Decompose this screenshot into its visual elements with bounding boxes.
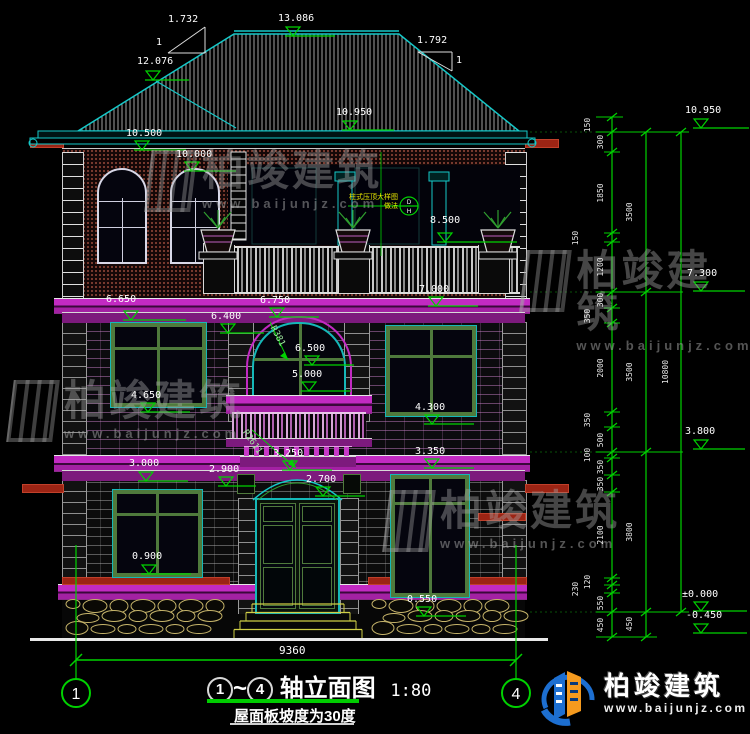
level-label: 10.000: [176, 150, 212, 160]
dim-chain-value: 120: [584, 565, 592, 599]
arched-window-left-1: [97, 168, 147, 264]
window-mullion: [99, 227, 145, 228]
window-pane: [395, 505, 429, 593]
datum-level-label: ±0.000: [682, 590, 718, 600]
arch-spring-block-left: [237, 474, 255, 494]
window-pane: [432, 479, 466, 502]
level-label: 2.900: [209, 465, 239, 475]
window-mullion: [172, 227, 218, 228]
window-mullion: [122, 198, 123, 262]
axis-bubble-1: 1: [72, 686, 81, 703]
dim-chain-value: 450: [626, 607, 634, 641]
red-band-left-belt: [22, 484, 64, 493]
level-label: 10.950: [336, 108, 372, 118]
drawing-scale: 1:80: [390, 681, 431, 701]
level-label: 3.350: [415, 447, 445, 457]
level-label: 3.000: [129, 459, 159, 469]
level-label: 6.750: [260, 296, 290, 306]
door-leaf-left: [260, 503, 296, 609]
dim-chain-value: 300: [597, 283, 605, 317]
door-panel: [263, 506, 293, 522]
dim-chain-value: 1850: [597, 176, 605, 210]
red-beam-right-eave: [525, 139, 559, 148]
door-panel: [302, 567, 332, 606]
dim-chain-value: 150: [572, 221, 580, 255]
dim-chain-value: 3800: [626, 515, 634, 549]
door-panel: [263, 567, 293, 606]
window-mullion: [195, 198, 196, 262]
dim-chain-value: 3500: [626, 355, 634, 389]
level-label: 3.250: [273, 449, 303, 459]
red-beam-left-eave: [30, 139, 64, 148]
door-panel: [302, 506, 332, 522]
title-block: 1~4 轴立面图 1:80: [207, 668, 431, 703]
subtitle-underline: [230, 723, 354, 725]
window-pane: [433, 330, 473, 355]
dim-chain-value: 2100: [597, 518, 605, 552]
dim-chain-value: 230: [572, 572, 580, 606]
datum-level-label: 7.300: [687, 269, 717, 279]
brand-logo: 柏竣建筑 www.baijunjz.com: [536, 662, 748, 726]
slope-left-run: 1.732: [168, 15, 198, 25]
detail-note: 柱式压顶大样图 做法: [340, 193, 398, 211]
door-panel: [263, 525, 293, 564]
window-pane: [390, 330, 430, 355]
dim-chain-value: 350: [584, 299, 592, 333]
level-label: 2.700: [306, 475, 336, 485]
axis-bubble-4: 4: [512, 686, 521, 703]
level-label: 4.650: [131, 391, 161, 401]
drawing-title: 轴立面图: [280, 675, 376, 702]
level-label: 13.086: [278, 14, 314, 24]
dim-chain-value: 100: [584, 438, 592, 472]
window-pane: [117, 516, 156, 573]
window-pane: [160, 327, 202, 347]
level-label: 0.900: [132, 552, 162, 562]
slope-right-rise: 1: [456, 56, 462, 66]
window-first-left: [112, 489, 203, 578]
window-pane: [117, 494, 156, 513]
level-label: 6.650: [106, 295, 136, 305]
level-label: 10.500: [126, 129, 162, 139]
quoin-left-mid: [62, 322, 87, 455]
datum-level-label: 3.800: [685, 427, 715, 437]
level-label: 6.500: [295, 344, 325, 354]
level-label: 7.000: [419, 285, 449, 295]
window-pane: [159, 516, 198, 573]
railing-post: [478, 243, 510, 294]
level-label: 6.400: [211, 312, 241, 322]
balustrade-third-floor: [228, 246, 520, 294]
door-leaf-right: [299, 503, 335, 609]
dim-chain-total: 10800: [662, 355, 670, 389]
dim-chain-value: 3500: [626, 195, 634, 229]
dim-chain-value: 300: [597, 125, 605, 159]
window-mullion: [172, 201, 218, 202]
title-tilde: ~: [233, 675, 247, 702]
watermark: 柏竣建筑www.baijunjz.com: [523, 250, 750, 353]
slope-right-run: 1.792: [417, 36, 447, 46]
window-mullion: [99, 201, 145, 202]
datum-level-label: -0.450: [686, 611, 722, 621]
dim-chain-value: 150: [584, 108, 592, 142]
dim-chain-value: 350: [597, 467, 605, 501]
brand-logo-icon: [536, 662, 596, 726]
slope-left-rise: 1: [156, 38, 162, 48]
quoin-right-mid: [502, 322, 527, 455]
window-pane: [395, 479, 429, 502]
railing-post: [338, 243, 370, 294]
elevation-drawing: 柱式压顶大样图 做法 1~4 轴立面图 1:80 屋面板坡度为30度 9360 …: [0, 0, 750, 734]
level-label: 0.550: [407, 595, 437, 605]
datum-level-label: 10.950: [685, 106, 721, 116]
quoin-left-top: [62, 152, 84, 298]
window-first-right: [390, 474, 470, 598]
level-label: 8.500: [430, 216, 460, 226]
window-pane: [432, 505, 466, 593]
arch-spring-block-right: [343, 474, 361, 494]
dim-chain-value: 450: [597, 608, 605, 642]
window-pane: [159, 494, 198, 513]
detail-note-line1: 柱式压顶大样图: [340, 193, 398, 202]
dim-chain-value: 1200: [597, 250, 605, 284]
window-mullion: [254, 358, 344, 361]
level-label: 12.076: [137, 57, 173, 67]
door-panel: [302, 525, 332, 564]
railing-post: [203, 243, 235, 294]
level-label: 4.300: [415, 403, 445, 413]
window-pane: [115, 327, 157, 347]
logo-brand-text: 柏竣建筑: [604, 673, 748, 700]
dim-chain-value: 2000: [597, 351, 605, 385]
window-pane: [160, 350, 202, 403]
entrance-double-door: [255, 498, 340, 614]
dim-chain-value: 350: [584, 403, 592, 437]
title-underline: [207, 699, 359, 703]
logo-url-text: www.baijunjz.com: [604, 701, 748, 715]
detail-note-line2: 做法: [340, 202, 398, 211]
watermark-logo-icon: [6, 380, 60, 442]
red-sill-left: [62, 577, 230, 585]
red-band-right-belt: [525, 484, 569, 493]
level-label: 5.000: [292, 370, 322, 380]
red-lintel-right-edge: [478, 513, 526, 521]
overall-width-dim: 9360: [279, 645, 306, 656]
